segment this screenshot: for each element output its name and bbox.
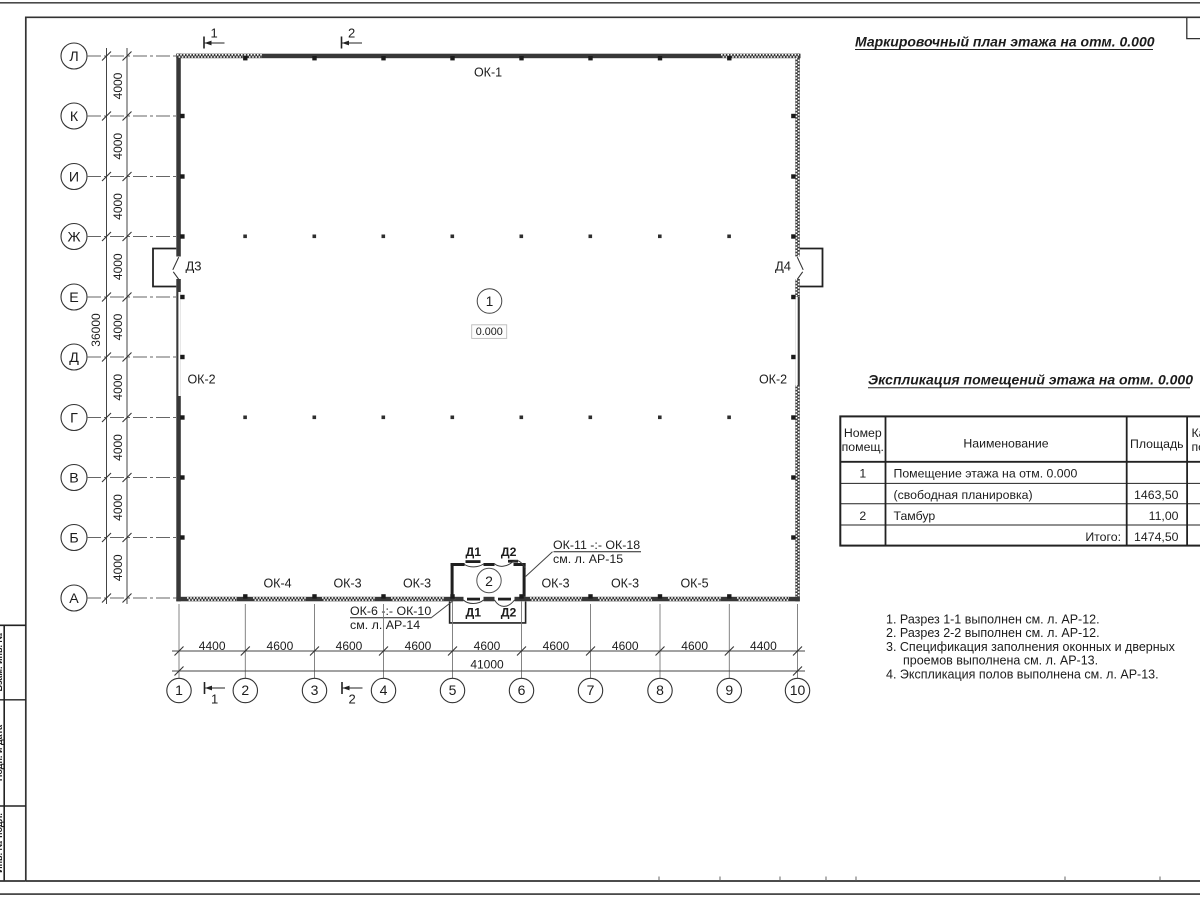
svg-text:ОК-3: ОК-3	[611, 577, 639, 591]
svg-text:Итого:: Итого:	[1085, 530, 1121, 544]
svg-text:2: 2	[349, 692, 356, 707]
svg-text:ОК-3: ОК-3	[333, 577, 361, 591]
svg-text:Е: Е	[69, 290, 78, 306]
svg-text:2. Разрез 2-2 выполнен см. л.: 2. Разрез 2-2 выполнен см. л. АР-12.	[886, 626, 1100, 640]
svg-text:4000: 4000	[111, 133, 125, 160]
svg-text:1474,50: 1474,50	[1134, 530, 1179, 544]
svg-text:4000: 4000	[111, 253, 125, 280]
svg-text:4600: 4600	[612, 639, 639, 653]
svg-text:Кат.: Кат.	[1192, 426, 1200, 440]
svg-text:1: 1	[175, 682, 183, 698]
svg-text:Д2: Д2	[501, 606, 517, 620]
svg-text:ОК-2: ОК-2	[187, 373, 215, 387]
svg-text:1: 1	[859, 467, 866, 481]
svg-text:4000: 4000	[111, 193, 125, 220]
svg-text:ОК-11 -:- ОК-18: ОК-11 -:- ОК-18	[553, 538, 640, 552]
svg-text:ОК-2: ОК-2	[759, 373, 787, 387]
svg-text:4000: 4000	[111, 72, 125, 99]
svg-text:4600: 4600	[543, 639, 570, 653]
svg-text:4400: 4400	[750, 639, 777, 653]
svg-text:Маркировочный план этажа на от: Маркировочный план этажа на отм. 0.000	[855, 34, 1155, 50]
svg-text:помещ.: помещ.	[842, 440, 884, 454]
svg-text:0.000: 0.000	[476, 326, 503, 338]
svg-text:Б: Б	[69, 531, 78, 547]
svg-text:2: 2	[485, 573, 493, 589]
svg-text:А: А	[69, 591, 79, 607]
svg-text:1: 1	[486, 294, 494, 309]
svg-text:1: 1	[211, 26, 218, 41]
svg-text:2: 2	[348, 26, 355, 41]
svg-text:ОК-3: ОК-3	[541, 577, 569, 591]
svg-text:4000: 4000	[111, 554, 125, 581]
svg-text:2: 2	[859, 509, 866, 523]
svg-text:Л: Л	[69, 49, 78, 65]
svg-text:Д3: Д3	[186, 259, 202, 274]
svg-text:ОК-1: ОК-1	[474, 66, 502, 80]
svg-text:ОК-6 -:- ОК-10: ОК-6 -:- ОК-10	[350, 604, 431, 618]
svg-text:Тамбур: Тамбур	[894, 509, 936, 523]
svg-text:4000: 4000	[111, 374, 125, 401]
svg-text:Инв. № подл.: Инв. № подл.	[0, 813, 4, 873]
svg-text:Наименование: Наименование	[963, 437, 1048, 451]
svg-text:8: 8	[656, 682, 664, 698]
svg-text:ОК-3: ОК-3	[403, 577, 431, 591]
svg-text:см. л. АР-15: см. л. АР-15	[553, 552, 623, 566]
svg-text:пож: пож	[1192, 440, 1200, 454]
svg-text:Помещение этажа на отм. 0.000: Помещение этажа на отм. 0.000	[894, 467, 1078, 481]
svg-text:4400: 4400	[199, 639, 226, 653]
svg-text:9: 9	[725, 682, 733, 698]
svg-text:Д2: Д2	[501, 545, 517, 559]
svg-text:5: 5	[449, 682, 457, 698]
svg-text:Номер: Номер	[844, 426, 882, 440]
svg-text:10: 10	[790, 682, 806, 698]
svg-text:4000: 4000	[111, 494, 125, 521]
svg-text:ОК-4: ОК-4	[263, 577, 291, 591]
svg-text:4600: 4600	[681, 639, 708, 653]
svg-text:ОК-5: ОК-5	[680, 577, 708, 591]
svg-text:И: И	[69, 170, 79, 186]
svg-text:4600: 4600	[336, 639, 363, 653]
svg-text:41000: 41000	[470, 658, 504, 672]
svg-text:К: К	[70, 109, 79, 125]
svg-text:3: 3	[311, 682, 319, 698]
svg-text:4600: 4600	[474, 639, 501, 653]
svg-text:7: 7	[587, 682, 595, 698]
svg-text:Площадь: Площадь	[1130, 437, 1184, 451]
svg-text:Д1: Д1	[465, 545, 481, 559]
svg-text:Д: Д	[69, 350, 79, 366]
svg-text:Экспликация помещений этажа на: Экспликация помещений этажа на отм. 0.00…	[868, 372, 1193, 388]
svg-text:11,00: 11,00	[1149, 509, 1179, 523]
svg-text:проемов выполнена см. л. АР-13: проемов выполнена см. л. АР-13.	[903, 654, 1098, 668]
svg-text:2: 2	[241, 682, 249, 698]
svg-text:Д4: Д4	[775, 259, 791, 274]
svg-text:3. Спецификация заполнения око: 3. Спецификация заполнения оконных и две…	[886, 640, 1176, 654]
svg-text:4000: 4000	[111, 434, 125, 461]
svg-text:Взам. инв. №: Взам. инв. №	[0, 632, 4, 691]
svg-text:4600: 4600	[267, 639, 294, 653]
svg-text:4: 4	[380, 682, 388, 698]
svg-text:4600: 4600	[405, 639, 432, 653]
svg-text:6: 6	[518, 682, 526, 698]
svg-text:1463,50: 1463,50	[1134, 488, 1179, 502]
svg-text:1: 1	[211, 692, 218, 707]
svg-text:Г: Г	[70, 411, 78, 427]
svg-text:4. Экспликация полов выполнена: 4. Экспликация полов выполнена см. л. АР…	[886, 667, 1159, 681]
svg-text:Д1: Д1	[465, 606, 481, 620]
svg-text:см. л. АР-14: см. л. АР-14	[350, 618, 420, 632]
svg-text:Ж: Ж	[67, 230, 80, 246]
svg-text:36000: 36000	[89, 313, 103, 347]
svg-text:В: В	[69, 471, 78, 487]
svg-text:(свободная планировка): (свободная планировка)	[894, 488, 1033, 502]
svg-text:1. Разрез 1-1 выполнен см. л.: 1. Разрез 1-1 выполнен см. л. АР-12.	[886, 613, 1100, 627]
svg-text:Подп. и дата: Подп. и дата	[0, 724, 4, 781]
svg-text:4000: 4000	[111, 313, 125, 340]
